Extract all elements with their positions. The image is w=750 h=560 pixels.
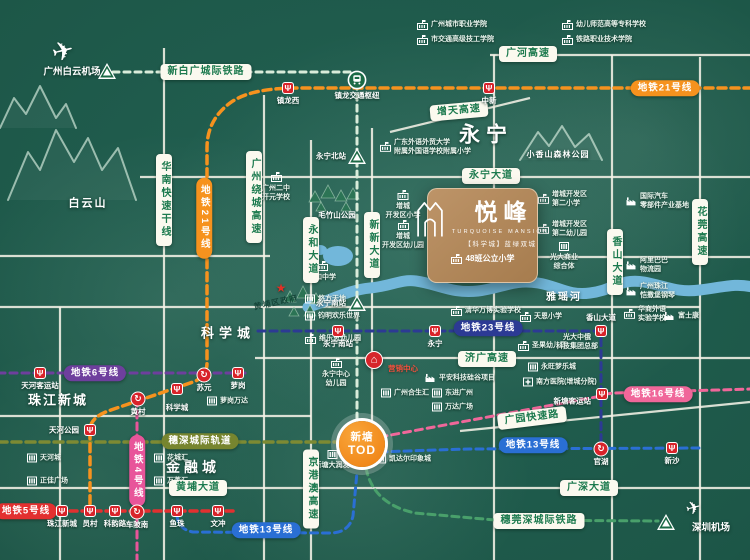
station-label: 鱼珠 — [170, 520, 185, 528]
pill-广河高速: 广河高速 — [499, 46, 557, 62]
school-icon — [398, 190, 409, 200]
school-icon — [624, 309, 635, 319]
project-school-label: 48班公立小学 — [466, 253, 515, 264]
project-name: 悦峰 — [469, 201, 533, 224]
pill-新新大道: 新新大道 — [364, 212, 380, 278]
metro-station-icon: Ψ — [332, 325, 344, 337]
station-label: 车陂南 — [126, 521, 149, 529]
area-label-科学城: 科学城 — [201, 327, 255, 340]
hospital-icon — [523, 378, 533, 387]
landmark-label: 第二幼儿园 — [552, 229, 587, 238]
station-label: 镇龙交通枢纽 — [335, 92, 380, 100]
area-label-珠江新城: 珠江新城 — [28, 394, 88, 407]
landmark-label: 东进广州 — [445, 388, 473, 397]
landmark-label: 铁路职业技术学院 — [576, 35, 632, 44]
landmark-label: 第二小学 — [552, 199, 587, 208]
building-icon — [528, 363, 538, 372]
landmark-正佳广场: 正佳广场 — [27, 476, 68, 485]
sales-center-icon: ⌂ — [365, 351, 383, 369]
landmark-label: 光大商业 — [550, 253, 578, 262]
pill-花莞高速: 花莞高速 — [692, 199, 708, 265]
landmark-label: 实验学校 — [638, 314, 666, 323]
factory-icon — [626, 261, 637, 270]
metro-station-icon: Ψ — [34, 367, 46, 379]
metro-location-map: 悦峰 TURQUOISE MANSION 【科学城】蓝绿双城 48班公立小学 新… — [0, 0, 750, 560]
landmark-广州珠江: 广州珠江恺撒堡钢琴 — [626, 282, 675, 300]
landmark-label: 广东外语外贸大学 — [394, 138, 471, 147]
metro-station-icon: Ψ — [429, 325, 441, 337]
landmark-label: 市交通高级技工学院 — [431, 35, 494, 44]
landmark-label: 幼儿园 — [322, 379, 350, 388]
baiyun-mountain-icon — [0, 86, 136, 200]
station-label: 天河客运站 — [21, 382, 59, 390]
building-icon — [327, 450, 337, 459]
station-label: 香山大道 — [586, 314, 616, 322]
landmark-凯达尔印象城: 凯达尔印象城 — [376, 454, 431, 463]
landmark-label: 国际汽车 — [640, 192, 689, 201]
project-tagline: 【科学城】蓝绿双城 — [465, 238, 537, 248]
station-label: 员村 — [83, 520, 98, 528]
pill-永和大道: 永和大道 — [303, 217, 319, 283]
station-label: 科韵路 — [104, 520, 127, 528]
metro-station-icon: Ψ — [84, 424, 96, 436]
landmark-label: 科技集团总部 — [556, 342, 598, 351]
landmark-萝岗万达: 萝岗万达 — [207, 396, 248, 405]
pill-地铁6号线: 地铁6号线 — [64, 365, 126, 381]
school-icon — [331, 358, 342, 368]
landmark-label: 天河城 — [40, 453, 61, 462]
landmark-光大商业: 光大商业综合体 — [550, 242, 578, 271]
factory-icon — [664, 312, 675, 321]
factory-icon — [626, 197, 637, 206]
station-label: 镇龙西 — [277, 97, 300, 105]
pill-穗莞深城际铁路: 穗莞深城际铁路 — [494, 513, 585, 529]
pill-地铁21号线: 地铁21号线 — [631, 80, 700, 96]
landmark-label: 钧明欢乐世界 — [318, 311, 360, 320]
district-govt-star-icon: ★ — [276, 282, 287, 294]
pill-地铁23号线: 地铁23号线 — [454, 320, 523, 336]
metro-station-icon: Ψ — [212, 505, 224, 517]
area-label-深圳机场: 深圳机场 — [692, 523, 730, 533]
landmark-label: 萝岗万达 — [220, 396, 248, 405]
landmark-阿里巴巴: 阿里巴巴物流园 — [626, 256, 668, 274]
school-icon — [417, 35, 428, 45]
station-label: 文冲 — [211, 520, 226, 528]
landmark-广州二中: 广州二中开元学校 — [262, 172, 290, 202]
pill-华南快速干线: 华南快速干线 — [156, 154, 172, 246]
building-icon — [305, 312, 315, 321]
landmark-label: 清华万博实验学校 — [465, 306, 521, 315]
tod-label-line2: TOD — [348, 444, 376, 457]
transfer-station-icon: ↻ — [197, 368, 212, 383]
landmark-光大中俄: 光大中俄科技集团总部 — [556, 333, 598, 351]
area-label-广州白云机场: 广州白云机场 — [43, 67, 100, 77]
landmark-永旺梦乐城: 永旺梦乐城 — [528, 362, 576, 371]
transfer-station-icon: ↻ — [130, 505, 145, 520]
rail-station-icon — [657, 514, 675, 530]
landmark-广州合生汇: 广州合生汇 — [381, 388, 429, 397]
yuefeng-logo-icon — [416, 198, 444, 240]
pill-香山大道: 香山大道 — [607, 229, 623, 295]
landmark-幼儿师范高等专科学校: 幼儿师范高等专科学校 — [562, 20, 646, 30]
landmark-label: 广州二中 — [262, 184, 290, 193]
landmark-label: 增城开发区 — [552, 190, 587, 199]
pill-永宁大道: 永宁大道 — [462, 168, 520, 184]
tod-label-line1: 新塘 — [351, 431, 374, 444]
landmark-label: 永宁中心 — [322, 370, 350, 379]
metro-station-icon: Ψ — [109, 505, 121, 517]
landmark-label: 广州城市职业学院 — [431, 20, 487, 29]
station-label: 中新 — [482, 97, 497, 105]
rail-station-icon — [98, 63, 116, 79]
landmark-铁路职业技术学院: 铁路职业技术学院 — [562, 35, 632, 45]
metro-station-icon: Ψ — [483, 82, 495, 94]
school-icon — [562, 35, 573, 45]
building-icon — [154, 477, 164, 486]
landmark-东进广州: 东进广州 — [432, 388, 473, 397]
pill-地铁21号线: 地铁21号线 — [196, 178, 212, 259]
school-icon — [417, 20, 428, 30]
landmark-万达广场: 万达广场 — [432, 402, 473, 411]
rail-hub-icon — [348, 71, 367, 90]
school-icon — [380, 142, 391, 152]
pill-黄埔大道: 黄埔大道 — [169, 480, 227, 496]
landmark-label: 新塘大润发 — [315, 461, 350, 470]
landmark-label: 凯达尔印象城 — [389, 454, 431, 463]
metro-station-icon: Ψ — [282, 82, 294, 94]
landmark-label: 零部件产业基地 — [640, 201, 689, 210]
landmark-label: 增城开发区 — [552, 220, 587, 229]
landmark-富士康: 富士康 — [664, 311, 699, 320]
landmark-label: 物流园 — [640, 265, 668, 274]
building-icon — [27, 477, 37, 486]
rail-station-icon — [348, 295, 366, 311]
area-label-毛竹山公园: 毛竹山公园 — [318, 211, 356, 219]
metro-station-icon: Ψ — [595, 325, 607, 337]
school-icon — [562, 20, 573, 30]
station-label: 苏元 — [197, 384, 212, 392]
building-icon — [559, 242, 569, 251]
transfer-station-icon: ↻ — [594, 442, 609, 457]
landmark-广州城市职业学院: 广州城市职业学院 — [417, 20, 487, 30]
project-brand-card: 悦峰 TURQUOISE MANSION 【科学城】蓝绿双城 48班公立小学 — [427, 188, 538, 283]
station-label: 科学城 — [166, 404, 189, 412]
landmark-label: 幼儿师范高等专科学校 — [576, 20, 646, 29]
xintang-tod-badge: 新塘 TOD — [339, 421, 385, 467]
landmark-label: 广州珠江 — [640, 282, 675, 291]
station-label: 珠江新城 — [47, 520, 77, 528]
station-label: 黄村 — [131, 408, 146, 416]
landmark-label: 恺撒堡钢琴 — [640, 291, 675, 300]
landmark-花城汇: 花城汇 — [154, 453, 188, 462]
landmark-广东外语外贸大学: 广东外语外贸大学附属外国语学校附属小学 — [380, 138, 471, 156]
area-label-雅瑶河: 雅瑶河 — [546, 293, 582, 303]
landmark-label: 永旺梦乐城 — [541, 362, 576, 371]
metro-station-icon: Ψ — [171, 505, 183, 517]
pill-地铁13号线: 地铁13号线 — [232, 522, 301, 538]
pill-新白广城际铁路: 新白广城际铁路 — [161, 64, 252, 80]
area-label-小香山森林公园: 小香山森林公园 — [527, 151, 590, 159]
pill-地铁16号线: 地铁16号线 — [624, 386, 693, 402]
pill-济广高速: 济广高速 — [458, 351, 516, 367]
sales-center-label: 营销中心 — [388, 363, 418, 374]
building-icon — [432, 403, 442, 412]
station-label: 永宁 — [428, 340, 443, 348]
school-icon — [398, 220, 409, 230]
landmark-label: 华商外语 — [638, 305, 666, 314]
pill-广州绕城高速: 广州绕城高速 — [246, 151, 262, 243]
station-label: 萝岗 — [231, 382, 246, 390]
station-label: 天河公园 — [49, 426, 79, 434]
pill-地铁13号线: 地铁13号线 — [499, 437, 568, 453]
metro-station-icon: Ψ — [171, 383, 183, 395]
landmark-国际汽车: 国际汽车零部件产业基地 — [626, 192, 689, 210]
area-label-白云山: 白云山 — [69, 199, 108, 210]
metro-station-icon: Ψ — [84, 505, 96, 517]
pill-地铁4号线: 地铁4号线 — [129, 435, 145, 507]
landmark-平安科技硅谷项目: 平安科技硅谷项目 — [425, 373, 495, 382]
landmark-label: 光大中俄 — [556, 333, 598, 342]
landmark-label: 富士康 — [678, 311, 699, 320]
metro-station-icon: Ψ — [666, 442, 678, 454]
metro-station-icon: Ψ — [232, 367, 244, 379]
school-icon — [451, 254, 462, 264]
landmark-清华万博实验学校: 清华万博实验学校 — [451, 306, 521, 316]
station-label: 新沙 — [665, 457, 680, 465]
landmark-钧明欢乐世界: 钧明欢乐世界 — [305, 311, 360, 320]
school-icon — [451, 306, 462, 316]
pill-广深大道: 广深大道 — [560, 480, 618, 496]
landmark-label: 附属外国语学校附属小学 — [394, 147, 471, 156]
building-icon — [27, 454, 37, 463]
project-subtitle: TURQUOISE MANSION — [452, 229, 549, 235]
building-icon — [381, 389, 391, 398]
transfer-station-icon: ↻ — [131, 392, 146, 407]
pill-穗深城际轨道: 穗深城际轨道 — [161, 433, 238, 449]
landmark-label: 阿里巴巴 — [640, 256, 668, 265]
school-icon — [518, 341, 529, 351]
building-icon — [305, 295, 315, 304]
landmark-市交通高级技工学院: 市交通高级技工学院 — [417, 35, 494, 45]
factory-icon — [425, 374, 436, 383]
landmark-label: 花城汇 — [167, 453, 188, 462]
pill-京港澳高速: 京港澳高速 — [303, 450, 319, 529]
station-label: 永宁北站 — [316, 152, 346, 160]
metro-station-icon: Ψ — [596, 388, 608, 400]
factory-icon — [626, 287, 637, 296]
landmark-天恩小学: 天恩小学 — [520, 312, 562, 322]
rail-station-icon — [348, 148, 366, 164]
pill-地铁5号线: 地铁5号线 — [0, 503, 57, 519]
landmark-南方医院(增城分院): 南方医院(增城分院) — [523, 377, 597, 386]
station-label: 永宁南站 — [323, 340, 353, 348]
landmark-label: 广州合生汇 — [394, 388, 429, 397]
landmark-label: 南方医院(增城分院) — [536, 377, 597, 386]
landmark-label: 开元学校 — [262, 193, 290, 202]
landmark-label: 综合体 — [550, 262, 578, 271]
landmark-天河城: 天河城 — [27, 453, 61, 462]
station-label: 新塘客运站 — [554, 397, 592, 405]
building-icon — [207, 397, 217, 406]
building-icon — [154, 454, 164, 463]
landmark-label: 天恩小学 — [534, 312, 562, 321]
school-icon — [520, 312, 531, 322]
building-icon — [432, 389, 442, 398]
school-icon — [271, 172, 282, 182]
station-label: 永宁南站 — [316, 299, 346, 307]
metro-station-icon: Ψ — [56, 505, 68, 517]
landmark-label: 万达广场 — [445, 402, 473, 411]
school-icon — [305, 334, 316, 344]
station-label: 官湖 — [594, 458, 609, 466]
landmark-永宁中心: 永宁中心幼儿园 — [322, 358, 350, 388]
landmark-label: 正佳广场 — [40, 476, 68, 485]
landmark-label: 平安科技硅谷项目 — [439, 373, 495, 382]
landmark-华商外语: 华商外语实验学校 — [624, 305, 666, 323]
